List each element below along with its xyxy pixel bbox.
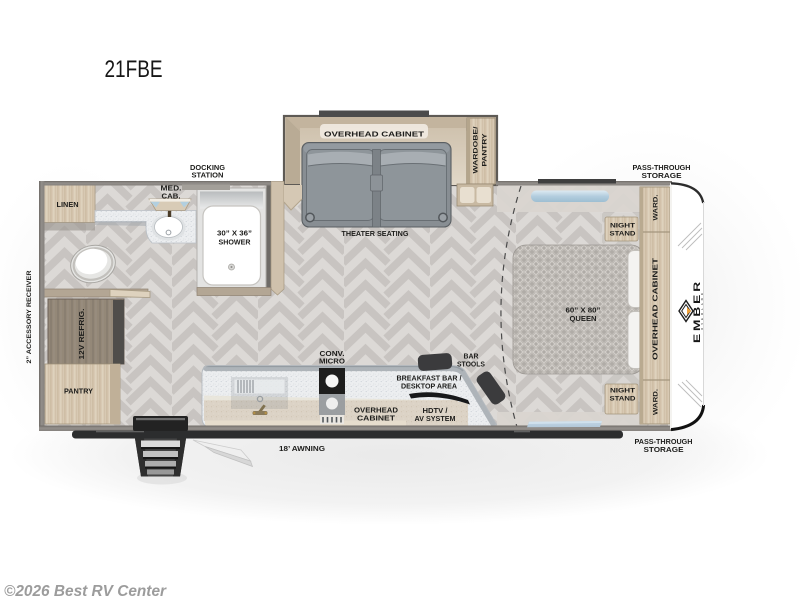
svg-text:STORAGE: STORAGE [642, 173, 682, 180]
svg-text:CABINET: CABINET [357, 416, 396, 423]
svg-text:DOCKING: DOCKING [190, 165, 226, 172]
svg-text:HDTV /: HDTV / [423, 408, 448, 415]
svg-text:BAR: BAR [464, 354, 479, 361]
svg-text:12V REFRIG.: 12V REFRIG. [79, 308, 86, 359]
svg-text:PANTRY: PANTRY [64, 389, 93, 396]
svg-text:LINEN: LINEN [57, 202, 79, 209]
svg-text:30” X 36”: 30” X 36” [217, 231, 252, 238]
svg-text:CAB.: CAB. [162, 194, 181, 201]
svg-text:DESKTOP AREA: DESKTOP AREA [401, 384, 457, 391]
svg-text:NIGHT: NIGHT [610, 388, 636, 395]
svg-text:WARD.: WARD. [653, 389, 660, 415]
svg-text:PASS-THROUGH: PASS-THROUGH [633, 165, 691, 172]
svg-text:O V E R L A N D: O V E R L A N D [701, 292, 704, 330]
svg-text:SHOWER: SHOWER [219, 240, 251, 247]
svg-text:STAND: STAND [610, 396, 636, 403]
svg-text:THEATER SEATING: THEATER SEATING [342, 229, 409, 238]
svg-text:BREAKFAST BAR /: BREAKFAST BAR / [397, 376, 462, 383]
svg-text:18’ AWNING: 18’ AWNING [279, 444, 325, 453]
svg-text:WARD.: WARD. [653, 194, 660, 220]
svg-text:OVERHEAD CABINET: OVERHEAD CABINET [324, 130, 425, 139]
svg-text:60” X 80”: 60” X 80” [566, 308, 601, 315]
svg-text:CONV.: CONV. [320, 351, 345, 358]
svg-text:STORAGE: STORAGE [644, 447, 684, 454]
svg-text:MED.: MED. [161, 186, 182, 193]
svg-text:WARDOBE/: WARDOBE/ [473, 126, 480, 173]
svg-text:2” ACCESSORY RECEIVER: 2” ACCESSORY RECEIVER [26, 270, 33, 363]
svg-text:QUEEN: QUEEN [570, 316, 597, 323]
svg-text:STATION: STATION [192, 173, 224, 180]
svg-text:PASS-THROUGH: PASS-THROUGH [635, 439, 693, 446]
svg-text:OVERHEAD: OVERHEAD [354, 408, 398, 415]
svg-text:AV SYSTEM: AV SYSTEM [415, 416, 456, 423]
svg-text:PANTRY: PANTRY [482, 133, 489, 167]
svg-text:©2026 Best RV Center: ©2026 Best RV Center [4, 583, 167, 600]
svg-text:NIGHT: NIGHT [610, 223, 636, 230]
svg-text:OVERHEAD CABINET: OVERHEAD CABINET [651, 257, 660, 360]
svg-text:STOOLS: STOOLS [457, 362, 485, 369]
svg-text:STAND: STAND [610, 231, 636, 238]
svg-text:21FBE: 21FBE [105, 56, 163, 83]
svg-text:MICRO: MICRO [319, 359, 346, 366]
